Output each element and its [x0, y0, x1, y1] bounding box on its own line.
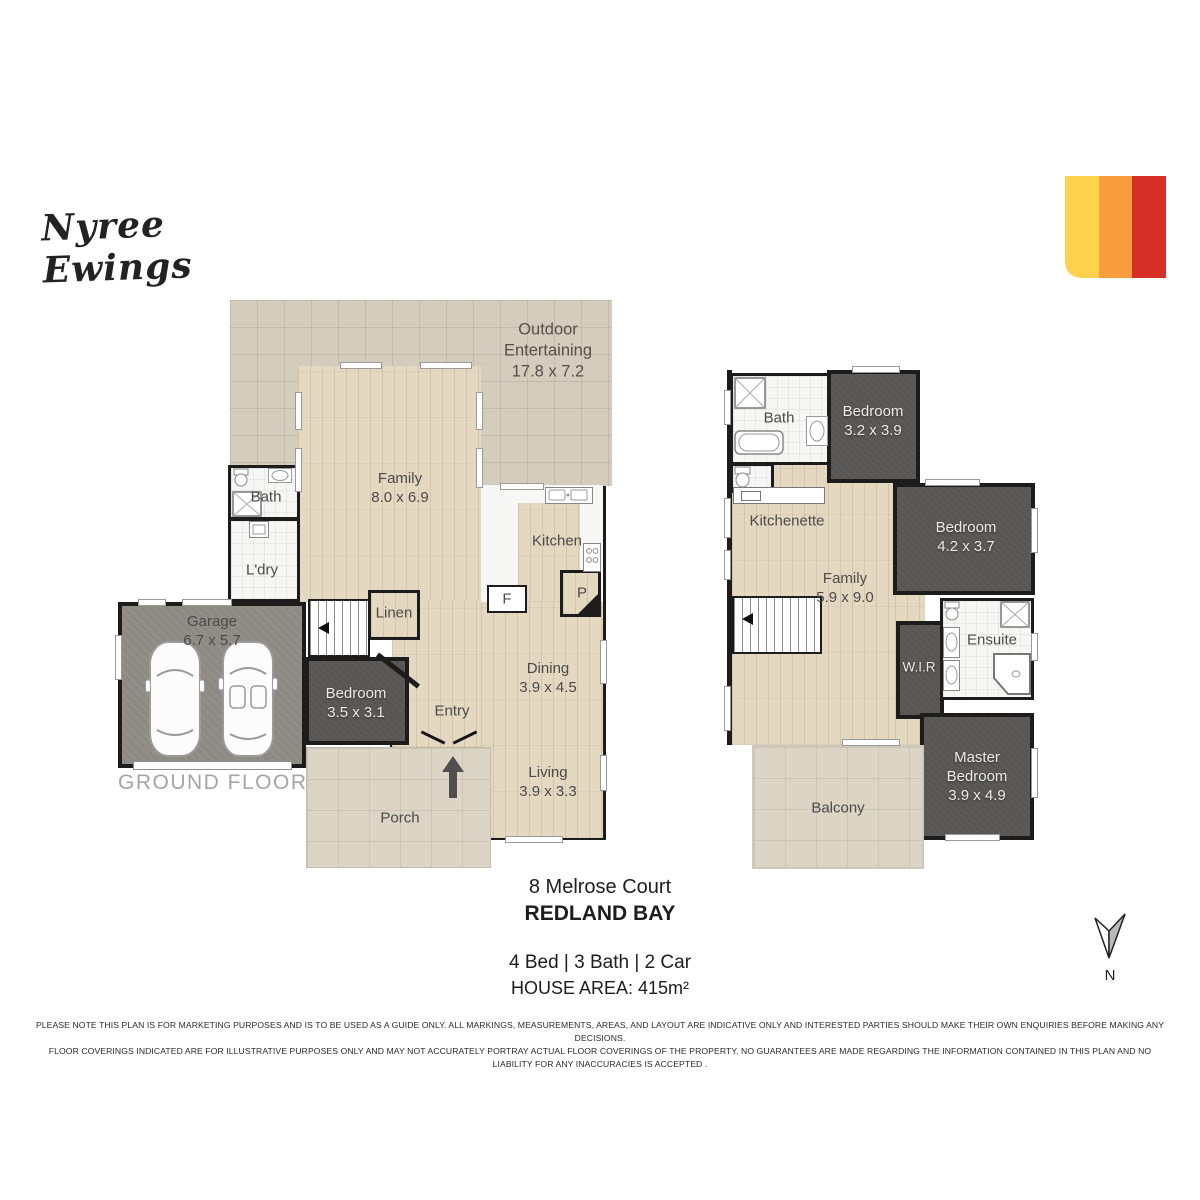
logo-stripe-yellow	[1065, 176, 1099, 278]
bathtub-icon	[734, 430, 784, 455]
car-icon	[145, 638, 205, 760]
window	[1031, 748, 1038, 798]
window	[295, 448, 302, 492]
label-fridge: F	[502, 589, 511, 608]
house-area: HOUSE AREA: 415m²	[360, 978, 840, 999]
room-label-linen: Linen	[376, 603, 413, 622]
room-label-bedroom3: Bedroom4.2 x 3.7	[936, 518, 997, 556]
window	[295, 392, 302, 430]
vanity-sink-icon	[943, 660, 960, 691]
window	[138, 599, 166, 606]
window	[945, 834, 1000, 841]
window	[476, 392, 483, 430]
disclaimer-text: PLEASE NOTE THIS PLAN IS FOR MARKETING P…	[30, 1019, 1170, 1071]
room-label-family: Family8.0 x 6.9	[371, 469, 429, 507]
sink-icon	[268, 468, 292, 483]
window	[600, 640, 607, 684]
toilet-icon	[734, 466, 751, 488]
room-label-bath: Bath	[251, 487, 282, 506]
window	[500, 483, 544, 490]
window	[852, 366, 900, 373]
room-label-balcony: Balcony	[811, 798, 864, 817]
ground-floor-caption: GROUND FLOOR	[118, 771, 308, 795]
north-arrow: N	[1088, 912, 1132, 984]
window	[724, 498, 731, 538]
laundry-tub-icon	[249, 521, 269, 538]
disclaimer-line2: FLOOR COVERINGS INDICATED ARE FOR ILLUST…	[30, 1045, 1170, 1071]
window	[600, 755, 607, 791]
room-label-entry: Entry	[434, 701, 469, 720]
stove-icon	[583, 543, 601, 572]
room-label-porch: Porch	[380, 808, 419, 827]
dining-living-floor	[481, 600, 603, 838]
room-label-dining: Dining3.9 x 4.5	[519, 659, 577, 697]
stairs-direction-arrow	[742, 613, 753, 625]
toilet-icon	[233, 468, 249, 487]
address-line1: 8 Melrose Court	[360, 876, 840, 899]
car-icon	[218, 638, 278, 760]
kitchen-sink-icon	[545, 487, 593, 504]
toilet-icon	[944, 601, 960, 621]
floorplan-page: Nyree Ewings	[0, 0, 1200, 1200]
north-label: N	[1088, 967, 1132, 984]
corner-bathtub-icon	[992, 652, 1032, 696]
brand-logo	[1065, 176, 1166, 278]
window	[182, 599, 232, 606]
room-label-bath: Bath	[764, 408, 795, 427]
agent-signature: Nyree Ewings	[41, 198, 304, 291]
kitchenette-sink	[741, 491, 761, 501]
window	[724, 686, 731, 731]
address-line2: REDLAND BAY	[360, 902, 840, 926]
vanity-sink-icon	[943, 627, 960, 658]
garage-door	[133, 761, 292, 770]
window	[476, 448, 483, 488]
logo-stripe-orange	[1099, 176, 1133, 278]
window	[1031, 508, 1038, 553]
shower-icon	[734, 377, 766, 409]
room-label-outdoor: Outdoor Entertaining 17.8 x 7.2	[478, 319, 618, 382]
disclaimer-line1: PLEASE NOTE THIS PLAN IS FOR MARKETING P…	[30, 1019, 1170, 1045]
room-label-living: Living3.9 x 3.3	[519, 763, 577, 801]
entry-arrow-icon	[442, 756, 464, 798]
window	[925, 479, 980, 486]
window	[724, 550, 731, 580]
window	[505, 836, 563, 843]
room-label-kitchen: Kitchen	[532, 531, 582, 550]
window	[115, 635, 122, 680]
north-arrow-icon	[1090, 912, 1130, 960]
room-label-ensuite: Ensuite	[967, 630, 1017, 649]
room-label-family-upper: Family5.9 x 9.0	[816, 569, 874, 607]
property-features: 4 Bed | 3 Bath | 2 Car	[360, 952, 840, 974]
room-label-laundry: L'dry	[246, 560, 278, 579]
room-label-kitchenette: Kitchenette	[749, 511, 824, 530]
room-label-garage: Garage6.7 x 5.7	[183, 612, 241, 650]
window	[420, 362, 472, 369]
sink-icon	[806, 416, 828, 446]
room-label-bedroom2: Bedroom3.2 x 3.9	[843, 402, 904, 440]
address-block: 8 Melrose Court REDLAND BAY 4 Bed | 3 Ba…	[360, 876, 840, 999]
shower-icon	[1000, 601, 1030, 628]
window	[340, 362, 382, 369]
staircase-upper	[732, 596, 822, 654]
logo-stripe-red	[1132, 176, 1166, 278]
room-label-bedroom: Bedroom3.5 x 3.1	[326, 684, 387, 722]
stairs-direction-arrow	[318, 622, 329, 634]
window	[1031, 633, 1038, 661]
room-label-wir: W.I.R	[903, 658, 936, 675]
room-label-master: Master Bedroom3.9 x 4.9	[936, 748, 1018, 806]
label-pantry: P	[577, 583, 587, 602]
window	[724, 390, 731, 425]
balcony-door	[842, 739, 900, 746]
